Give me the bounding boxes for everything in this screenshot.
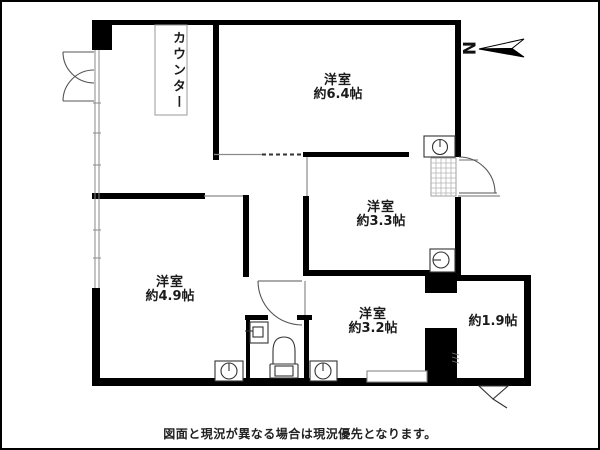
double-door-swing bbox=[63, 52, 94, 101]
disclaimer-text: 図面と現況が異なる場合は現況優先となります。 bbox=[0, 425, 600, 442]
room-size: 約1.9帖 bbox=[443, 315, 543, 329]
room-size: 約4.9帖 bbox=[120, 290, 220, 304]
room-label-3-2: 洋室 約3.2帖 bbox=[323, 308, 423, 336]
room-size: 約6.4帖 bbox=[288, 88, 388, 102]
wall-segment bbox=[304, 315, 309, 378]
wall-segment bbox=[455, 275, 531, 281]
window-band bbox=[93, 50, 101, 288]
washer-symbol-icon bbox=[424, 136, 455, 157]
north-arrow-icon bbox=[479, 39, 524, 49]
room-name: 洋室 bbox=[288, 74, 388, 88]
utility-symbol-icon bbox=[430, 249, 455, 272]
shelf-outline bbox=[367, 371, 427, 382]
entrance-tataki-hatch bbox=[431, 158, 456, 196]
toilet-icon bbox=[270, 337, 298, 378]
counter-label: カウンター bbox=[155, 28, 187, 114]
wall-segment bbox=[243, 195, 249, 277]
room-label-6-4: 洋室 約6.4帖 bbox=[288, 74, 388, 102]
wall-segment bbox=[92, 193, 204, 199]
room-name: 洋室 bbox=[120, 276, 220, 290]
wall-segment bbox=[524, 275, 531, 386]
wall-segment bbox=[92, 20, 112, 50]
washer-symbol-icon bbox=[215, 361, 243, 381]
room-name: 洋室 bbox=[323, 308, 423, 322]
north-label: N bbox=[458, 41, 478, 55]
wall-segment bbox=[213, 20, 219, 160]
room-size: 約3.3帖 bbox=[331, 215, 431, 229]
entrance-door-swing bbox=[459, 157, 497, 193]
wall-segment bbox=[246, 318, 250, 378]
wall-segment bbox=[455, 197, 461, 278]
north-arrow-icon bbox=[479, 49, 524, 58]
wall-segment bbox=[92, 288, 100, 386]
wall-segment bbox=[92, 20, 461, 25]
room-label-3-3: 洋室 約3.3帖 bbox=[331, 201, 431, 229]
washer-symbol-icon bbox=[310, 361, 337, 381]
wall-segment bbox=[303, 196, 309, 275]
compass: N bbox=[458, 39, 524, 57]
wall-segment bbox=[303, 152, 409, 157]
room-label-1-9: 約1.9帖 bbox=[443, 315, 543, 329]
room-name: 洋室 bbox=[331, 201, 431, 215]
floor-plan-drawing: N bbox=[0, 0, 600, 450]
room-label-4-9: 洋室 約4.9帖 bbox=[120, 276, 220, 304]
wall-segment bbox=[425, 276, 457, 293]
room-size: 約3.2帖 bbox=[323, 322, 423, 336]
floor-plan: N カウンター 洋室 約6.4帖 洋室 約3.3帖 洋室 約4.9帖 洋室 約3… bbox=[0, 0, 600, 450]
entrance-marker-icon bbox=[479, 386, 508, 408]
wall-segment bbox=[425, 328, 457, 383]
